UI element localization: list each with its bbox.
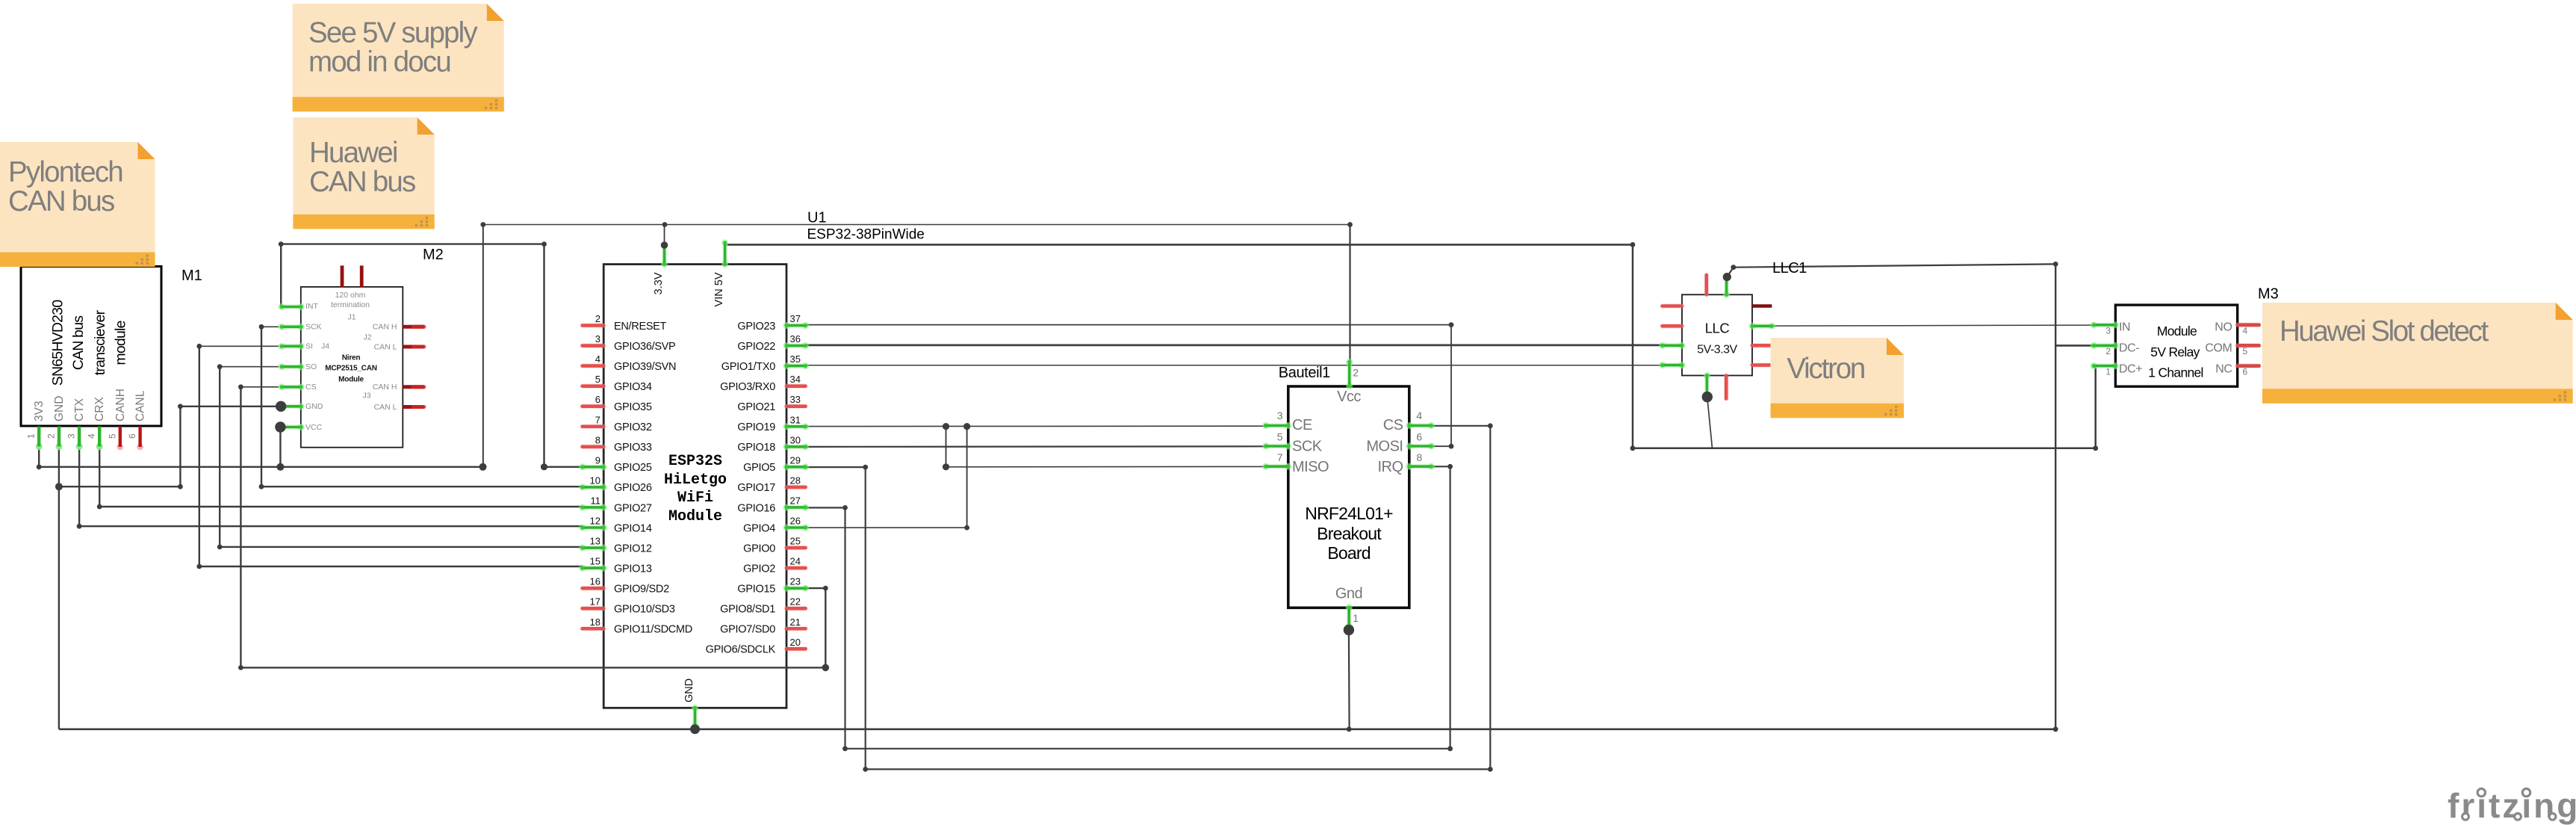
svg-text:CE: CE [1292,417,1312,433]
svg-text:HiLetgo: HiLetgo [664,472,727,489]
svg-text:2: 2 [595,313,600,324]
svg-text:3V3: 3V3 [33,401,46,421]
svg-text:GPIO21: GPIO21 [737,401,775,413]
svg-text:17: 17 [590,596,600,608]
svg-text:5: 5 [1277,431,1283,443]
svg-text:GPIO10/SD3: GPIO10/SD3 [614,604,675,616]
svg-text:M1: M1 [181,268,202,284]
svg-text:GPIO23: GPIO23 [737,321,775,333]
svg-text:DC-: DC- [2119,342,2139,355]
svg-text:CAN L: CAN L [374,403,397,412]
svg-text:M3: M3 [2258,286,2279,303]
svg-text:transciever: transciever [92,309,108,375]
svg-text:Victron: Victron [1787,353,1864,385]
svg-text:SN65HVD230: SN65HVD230 [50,300,66,386]
svg-text:13: 13 [590,536,600,547]
svg-text:IN: IN [2119,321,2130,334]
svg-text:36: 36 [790,333,801,344]
svg-text:module: module [113,321,129,365]
svg-text:Module: Module [668,508,722,525]
svg-text:7: 7 [595,414,600,425]
svg-text:3: 3 [66,433,77,439]
svg-text:5: 5 [107,433,117,439]
svg-text:CS: CS [1383,417,1403,433]
svg-text:GPIO15: GPIO15 [737,583,775,595]
svg-text:CAN bus: CAN bus [8,185,114,217]
svg-text:DC+: DC+ [2119,362,2142,375]
svg-text:12: 12 [590,516,600,527]
svg-text:35: 35 [790,353,801,365]
svg-text:termination: termination [331,300,370,309]
svg-text:26: 26 [790,516,801,527]
svg-text:MISO: MISO [1292,459,1329,475]
svg-text:GPIO25: GPIO25 [614,462,652,474]
svg-text:IRQ: IRQ [1377,459,1403,475]
svg-text:GPIO35: GPIO35 [614,401,652,413]
svg-text:Huawei Slot detect: Huawei Slot detect [2279,315,2489,347]
svg-text:CAN L: CAN L [374,342,397,351]
svg-text:CAN H: CAN H [373,383,397,392]
svg-text:Bauteil1: Bauteil1 [1279,365,1330,381]
svg-text:10: 10 [590,475,600,486]
svg-text:20: 20 [790,637,801,648]
svg-text:CANL: CANL [134,390,147,421]
svg-text:3.3V: 3.3V [653,272,665,294]
svg-text:4: 4 [1416,410,1422,421]
svg-text:15: 15 [590,556,600,567]
svg-text:GPIO19: GPIO19 [737,421,775,433]
svg-text:ESP32S: ESP32S [668,453,722,470]
svg-text:3: 3 [595,333,600,344]
svg-text:J3: J3 [362,392,370,401]
svg-text:GPIO3/RX0: GPIO3/RX0 [720,381,775,393]
svg-text:24: 24 [790,556,801,567]
svg-text:Breakout: Breakout [1317,524,1382,543]
svg-text:GPIO1/TX0: GPIO1/TX0 [721,361,775,373]
svg-text:8: 8 [1416,451,1422,463]
svg-text:GPIO8/SD1: GPIO8/SD1 [720,604,775,616]
svg-text:25: 25 [790,536,801,547]
svg-text:SCK: SCK [305,323,322,332]
svg-text:Niren: Niren [342,354,361,362]
svg-text:CAN bus: CAN bus [70,315,87,370]
svg-text:GPIO11/SDCMD: GPIO11/SDCMD [614,624,692,636]
svg-text:CTX: CTX [73,398,86,421]
svg-text:COM: COM [2205,342,2232,355]
svg-text:37: 37 [790,313,801,324]
svg-text:LLC1: LLC1 [1772,260,1807,276]
svg-text:6: 6 [1416,431,1422,443]
svg-text:GPIO18: GPIO18 [737,442,775,454]
svg-text:GPIO9/SD2: GPIO9/SD2 [614,583,669,595]
svg-text:Module: Module [338,375,364,383]
svg-text:M2: M2 [423,247,444,263]
svg-text:VIN 5V: VIN 5V [713,272,725,306]
svg-text:INT: INT [305,302,319,311]
svg-text:GPIO7/SD0: GPIO7/SD0 [720,624,775,636]
svg-text:Vcc: Vcc [1337,389,1361,405]
svg-text:33: 33 [790,394,801,405]
svg-text:6: 6 [595,394,600,405]
svg-text:U1: U1 [807,210,827,226]
svg-text:Gnd: Gnd [1335,585,1362,602]
svg-text:11: 11 [591,495,601,506]
svg-text:GPIO12: GPIO12 [614,543,652,554]
svg-text:GPIO26: GPIO26 [614,482,652,494]
svg-text:mod in docu: mod in docu [308,46,450,78]
svg-text:LLC: LLC [1705,321,1730,336]
svg-text:GPIO39/SVN: GPIO39/SVN [614,361,676,373]
svg-text:8: 8 [595,434,600,445]
svg-text:GPIO36/SVP: GPIO36/SVP [614,341,675,353]
svg-text:GPIO13: GPIO13 [614,563,652,575]
svg-text:Huawei: Huawei [309,137,397,169]
svg-text:SO: SO [305,362,317,371]
svg-text:18: 18 [590,617,600,628]
svg-text:CANH: CANH [114,389,127,421]
svg-text:GND: GND [53,396,66,421]
svg-text:J2: J2 [363,333,371,342]
svg-text:GPIO2: GPIO2 [743,563,775,575]
svg-text:GPIO6/SDCLK: GPIO6/SDCLK [706,644,776,656]
svg-text:GPIO0: GPIO0 [743,543,775,554]
svg-text:J1: J1 [347,312,356,321]
svg-text:27: 27 [790,495,801,506]
svg-text:NC: NC [2215,362,2232,375]
svg-text:28: 28 [790,475,801,486]
svg-text:VCC: VCC [305,423,323,432]
svg-text:Module: Module [2157,324,2197,339]
svg-text:GPIO33: GPIO33 [614,442,652,454]
svg-text:31: 31 [790,414,801,425]
svg-text:GPIO5: GPIO5 [743,462,775,474]
svg-text:1: 1 [26,433,37,439]
svg-text:See 5V supply: See 5V supply [308,17,478,49]
svg-text:SI: SI [305,342,313,351]
svg-text:GPIO34: GPIO34 [614,381,652,393]
svg-text:GND: GND [305,402,323,411]
svg-text:MOSI: MOSI [1366,438,1403,454]
svg-text:GPIO14: GPIO14 [614,522,652,534]
svg-text:SCK: SCK [1292,438,1323,454]
svg-text:CRX: CRX [93,397,106,421]
svg-text:29: 29 [790,454,801,466]
svg-text:CAN bus: CAN bus [309,166,415,198]
svg-text:ESP32-38PinWide: ESP32-38PinWide [807,227,925,243]
svg-text:4: 4 [595,353,600,365]
svg-text:GPIO16: GPIO16 [737,502,775,514]
svg-text:Board: Board [1327,543,1370,563]
svg-text:3: 3 [1277,410,1283,421]
svg-text:120 ohm: 120 ohm [335,291,366,300]
svg-text:GPIO22: GPIO22 [737,341,775,353]
svg-text:4: 4 [87,433,97,439]
svg-text:9: 9 [595,454,600,466]
svg-text:2: 2 [1353,367,1359,379]
svg-text:1 Channel: 1 Channel [2148,365,2203,380]
svg-text:2: 2 [46,433,57,439]
svg-text:CAN H: CAN H [373,323,397,332]
svg-text:5V Relay: 5V Relay [2150,344,2200,359]
svg-text:30: 30 [790,434,801,445]
svg-text:21: 21 [790,617,801,628]
svg-text:23: 23 [790,576,801,587]
svg-text:J4: J4 [321,342,329,350]
svg-text:EN/RESET: EN/RESET [614,321,667,333]
svg-text:MCP2515_CAN: MCP2515_CAN [325,365,377,373]
svg-text:NRF24L01+: NRF24L01+ [1305,504,1393,523]
svg-text:WiFi: WiFi [677,489,713,507]
svg-text:NO: NO [2215,321,2232,334]
svg-text:GPIO17: GPIO17 [737,482,775,494]
svg-text:Pylontech: Pylontech [8,156,122,188]
svg-text:GPIO4: GPIO4 [743,522,775,534]
svg-text:16: 16 [590,576,600,587]
svg-text:22: 22 [790,596,801,608]
svg-text:5: 5 [595,374,600,385]
svg-text:GND: GND [683,679,695,702]
svg-text:5V-3.3V: 5V-3.3V [1697,344,1737,356]
svg-text:GPIO27: GPIO27 [614,502,652,514]
svg-text:7: 7 [1277,451,1283,463]
svg-text:1: 1 [1353,612,1359,624]
svg-text:CS: CS [305,383,317,392]
svg-text:GPIO32: GPIO32 [614,421,652,433]
svg-text:6: 6 [127,433,137,439]
svg-text:34: 34 [790,374,801,385]
